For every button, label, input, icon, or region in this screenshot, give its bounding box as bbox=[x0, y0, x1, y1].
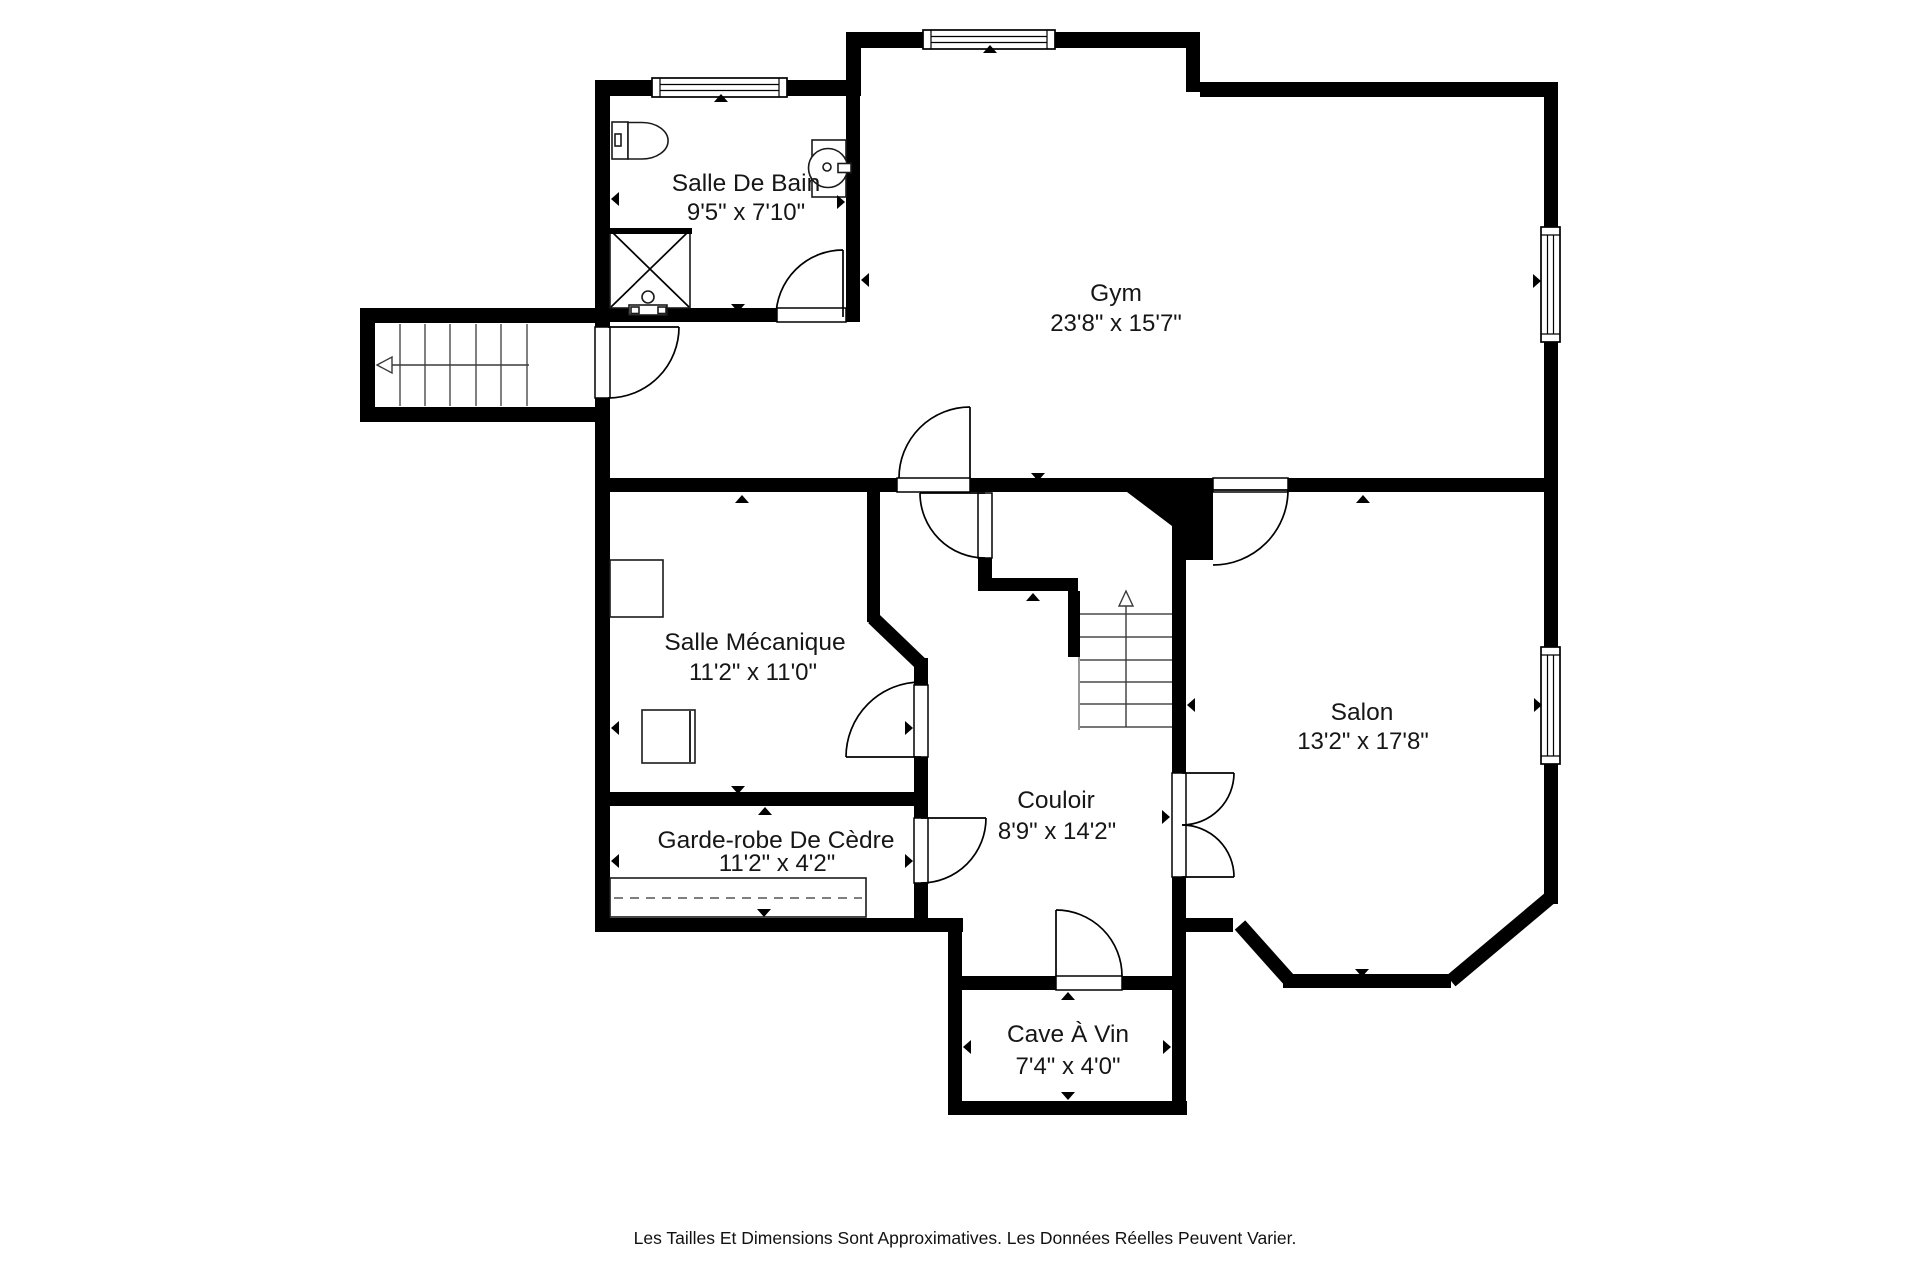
room-dims: 8'9" x 14'2" bbox=[998, 818, 1116, 845]
walls bbox=[360, 32, 1558, 1115]
marker-left-icon bbox=[963, 1040, 971, 1054]
wall-segment bbox=[1288, 478, 1558, 492]
room-name: Salon bbox=[1331, 699, 1394, 726]
marker-right-icon bbox=[1533, 274, 1541, 288]
wall-segment bbox=[948, 918, 962, 1115]
room-dims: 11'2" x 11'0" bbox=[689, 659, 817, 686]
wall-segment bbox=[595, 478, 897, 492]
marker-right-icon bbox=[905, 721, 913, 735]
room-label-couloir: Couloir 8'9" x 14'2" bbox=[998, 787, 1116, 845]
stairs-up-arrow-icon bbox=[1119, 591, 1133, 606]
room-dims: 11'2" x 4'2" bbox=[719, 850, 836, 877]
wall-segment bbox=[1050, 32, 1200, 48]
wall-segment bbox=[1200, 82, 1558, 97]
wall-diagonal bbox=[1451, 897, 1551, 981]
doorway-garde-robe bbox=[914, 818, 928, 883]
marker-down-icon bbox=[1061, 1092, 1075, 1100]
marker-left-icon bbox=[1187, 698, 1195, 712]
closet-rod bbox=[610, 878, 866, 917]
marker-left-icon bbox=[861, 273, 869, 287]
disclaimer-text: Les Tailles Et Dimensions Sont Approxima… bbox=[634, 1228, 1297, 1248]
wall-segment bbox=[595, 918, 963, 932]
wall-segment bbox=[1122, 976, 1172, 990]
mechanical-unit-icon bbox=[610, 560, 663, 617]
room-name: Salle Mécanique bbox=[664, 629, 845, 656]
room-name: Gym bbox=[1090, 280, 1142, 307]
window-gym-right bbox=[1541, 227, 1560, 342]
wall-diagonal bbox=[1240, 925, 1290, 981]
marker-right-icon bbox=[1162, 810, 1170, 824]
marker-left-icon bbox=[611, 192, 619, 206]
marker-up-icon bbox=[758, 807, 772, 815]
wall-segment bbox=[595, 80, 657, 96]
wall-segment bbox=[1544, 342, 1558, 478]
wall-segment bbox=[1544, 97, 1558, 228]
shower-icon bbox=[608, 228, 692, 315]
marker-up-icon bbox=[735, 495, 749, 503]
marker-right-icon bbox=[1163, 1040, 1171, 1054]
marker-up-icon bbox=[1356, 495, 1370, 503]
room-name: Cave À Vin bbox=[1007, 1021, 1129, 1048]
room-dims: 23'8" x 15'7" bbox=[1050, 310, 1182, 337]
wall-segment bbox=[1068, 591, 1080, 657]
stairs-entry bbox=[377, 324, 529, 406]
wall-segment bbox=[595, 792, 928, 806]
wall-segment bbox=[914, 658, 928, 685]
toilet-icon bbox=[612, 122, 668, 159]
wall-segment bbox=[978, 558, 992, 578]
wall-segment bbox=[962, 976, 1056, 990]
room-name: Couloir bbox=[1017, 787, 1095, 814]
marker-up-icon bbox=[1061, 992, 1075, 1000]
stairs-main bbox=[1079, 591, 1172, 730]
door-salle-mecanique bbox=[846, 682, 921, 757]
room-label-gym: Gym 23'8" x 15'7" bbox=[1050, 280, 1182, 337]
wall-segment bbox=[846, 96, 860, 322]
mechanical-unit-icon bbox=[642, 710, 695, 763]
room-label-salon: Salon 13'2" x 17'8" bbox=[1297, 699, 1429, 755]
doorway-bathroom bbox=[777, 308, 846, 322]
doorway-salle-mecanique bbox=[914, 685, 928, 757]
doorway-cave-a-vin bbox=[1056, 976, 1122, 990]
door-gym-salon bbox=[1213, 490, 1288, 565]
wall-corner-block bbox=[1127, 492, 1213, 560]
marker-up-icon bbox=[1026, 593, 1040, 601]
wall-segment bbox=[1544, 478, 1558, 647]
wall-segment bbox=[948, 1101, 1187, 1115]
wall-segment bbox=[1172, 560, 1186, 773]
room-label-salle-mecanique: Salle Mécanique 11'2" x 11'0" bbox=[664, 629, 845, 686]
door-stairs-gym bbox=[608, 327, 679, 398]
stairs-direction-arrow-icon bbox=[377, 357, 392, 373]
wall-segment bbox=[846, 32, 930, 48]
equipment-boxes bbox=[610, 560, 695, 763]
wall-segment bbox=[978, 578, 1078, 591]
marker-right-icon bbox=[905, 854, 913, 868]
doorway-couloir-landing bbox=[978, 493, 992, 558]
room-dims: 13'2" x 17'8" bbox=[1297, 728, 1429, 755]
door-cave-a-vin bbox=[1056, 910, 1122, 976]
window-salon-right bbox=[1541, 647, 1560, 764]
wall-segment bbox=[360, 308, 375, 422]
doorway-stairs-gym bbox=[595, 327, 610, 398]
room-dims: 7'4" x 4'0" bbox=[1016, 1053, 1121, 1080]
door-garde-robe bbox=[921, 818, 986, 883]
room-dims: 9'5" x 7'10" bbox=[687, 199, 805, 226]
wall-segment bbox=[1186, 32, 1200, 92]
wall-segment bbox=[867, 492, 880, 622]
wall-segment bbox=[1544, 764, 1558, 904]
room-label-salle-de-bain: Salle De Bain 9'5" x 7'10" bbox=[672, 170, 820, 226]
wall-segment bbox=[1283, 974, 1451, 988]
wall-segment bbox=[970, 478, 1213, 492]
wall-segment bbox=[595, 80, 610, 327]
room-label-garde-robe: Garde-robe De Cèdre 11'2" x 4'2" bbox=[658, 827, 895, 877]
floor-plan-drawing: Salle De Bain 9'5" x 7'10" Gym 23'8" x 1… bbox=[0, 0, 1920, 1280]
doorway-gym-couloir bbox=[897, 478, 970, 492]
wall-segment bbox=[1172, 877, 1186, 1115]
window-bathroom bbox=[652, 78, 787, 97]
wall-diagonal bbox=[873, 618, 921, 664]
door-bathroom bbox=[776, 250, 843, 317]
room-name: Salle De Bain bbox=[672, 170, 820, 197]
wall-segment bbox=[360, 308, 610, 323]
wall-segment bbox=[914, 757, 928, 818]
marker-left-icon bbox=[611, 721, 619, 735]
wall-segment bbox=[595, 492, 610, 932]
marker-left-icon bbox=[611, 854, 619, 868]
door-couloir-landing bbox=[920, 493, 985, 558]
door-gym-couloir bbox=[899, 407, 970, 478]
french-doors-salon bbox=[1182, 773, 1234, 877]
floor-plan: Salle De Bain 9'5" x 7'10" Gym 23'8" x 1… bbox=[0, 0, 1920, 1280]
room-labels: Salle De Bain 9'5" x 7'10" Gym 23'8" x 1… bbox=[658, 170, 1429, 1080]
wall-segment bbox=[1186, 918, 1233, 932]
wall-segment bbox=[360, 407, 610, 422]
room-label-cave-a-vin: Cave À Vin 7'4" x 4'0" bbox=[1007, 1021, 1129, 1080]
